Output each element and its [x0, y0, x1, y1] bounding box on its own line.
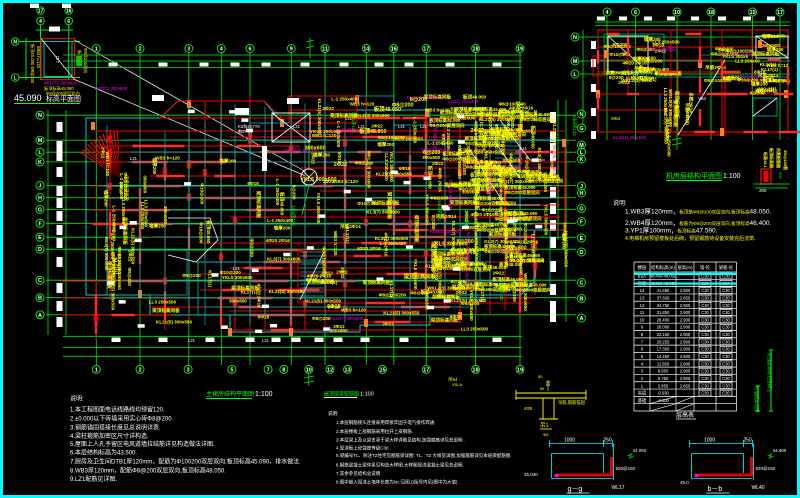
svg-text:墙厚200: 墙厚200 [219, 157, 236, 164]
svg-text:34.750: 34.750 [657, 303, 670, 308]
svg-text:N: N [573, 35, 577, 41]
svg-text:Φ8@200: Φ8@200 [249, 238, 254, 257]
svg-text:Φ8@100/200: Φ8@100/200 [123, 172, 128, 200]
svg-text:4: 4 [39, 19, 42, 25]
svg-text:E: E [580, 236, 584, 242]
svg-text:YKL5 300x600: YKL5 300x600 [392, 137, 423, 142]
svg-text:300x600: 300x600 [506, 119, 511, 137]
svg-text:19: 19 [517, 367, 523, 373]
svg-text:2Φ22: 2Φ22 [100, 147, 105, 159]
svg-text:板顶48.050: 板顶48.050 [374, 105, 401, 113]
svg-text:19: 19 [517, 47, 523, 53]
svg-text:梁顶标高同板: 梁顶标高同板 [413, 214, 420, 243]
svg-text:L21: L21 [345, 116, 353, 121]
svg-text:C30: C30 [701, 347, 709, 352]
svg-text:300x600: 300x600 [305, 146, 326, 152]
svg-text:300x600: 300x600 [229, 299, 247, 304]
svg-text:YKL5 300x600: YKL5 300x600 [543, 204, 548, 235]
svg-text:20.250: 20.250 [657, 339, 670, 344]
svg-text:机房层结构平面图: 机房层结构平面图 [666, 171, 722, 180]
svg-text:H: H [580, 191, 584, 197]
svg-text:XSLA: XSLA [452, 382, 463, 387]
svg-text:L-1 250x400: L-1 250x400 [331, 96, 357, 101]
svg-text:4.现浇板上砼强度等级C30 .: 4.现浇板上砼强度等级C30 . [336, 445, 391, 452]
svg-text:2.±0.000以下砖墙采用实心砖Φ8@200.: 2.±0.000以下砖墙采用实心砖Φ8@200. [70, 415, 174, 423]
svg-text:梁顶标高同板: 梁顶标高同板 [403, 273, 437, 281]
svg-text:WB4: WB4 [611, 116, 621, 121]
svg-text:1:100: 1:100 [723, 173, 741, 180]
svg-text:Φ8@200: Φ8@200 [112, 222, 117, 241]
svg-text:2.900: 2.900 [680, 303, 691, 308]
svg-text:2.900: 2.900 [680, 354, 691, 359]
svg-text:250: 250 [743, 438, 752, 444]
svg-text:11: 11 [322, 47, 328, 53]
svg-text:14: 14 [363, 47, 370, 53]
svg-text:L401 300x10: L401 300x10 [728, 51, 753, 56]
svg-text:17: 17 [38, 9, 44, 15]
svg-text:C30: C30 [722, 339, 730, 344]
svg-text:WB3 h=120: WB3 h=120 [341, 307, 366, 312]
svg-text:4Φ20 2Φ16: 4Φ20 2Φ16 [111, 251, 116, 276]
svg-text:C30: C30 [722, 369, 730, 374]
svg-text:KL17(1): KL17(1) [640, 77, 657, 82]
svg-text:说明:: 说明: [70, 395, 84, 403]
svg-text:L21: L21 [188, 338, 196, 343]
svg-text:6Φ18: 6Φ18 [450, 314, 462, 319]
svg-text:V84: V84 [698, 96, 707, 101]
svg-text:吊1: 吊1 [540, 422, 549, 429]
svg-text:墙厚200: 墙厚200 [149, 223, 166, 230]
svg-text:Φ10@200: Φ10@200 [200, 183, 205, 204]
svg-text:2Φ22: 2Φ22 [127, 250, 132, 262]
svg-text:L21: L21 [520, 146, 528, 151]
svg-text:2.900: 2.900 [680, 288, 691, 293]
svg-text:17: 17 [423, 367, 429, 373]
svg-text:7.其余参见结构总说明.: 7.其余参见结构总说明. [336, 470, 382, 477]
svg-text:WB3 h=120: WB3 h=120 [312, 133, 337, 138]
svg-text:KL17(1): KL17(1) [761, 67, 778, 72]
svg-text:920@150: 920@150 [616, 466, 636, 471]
svg-text:300x600: 300x600 [142, 175, 147, 193]
svg-text:K: K [580, 157, 584, 163]
svg-text:C30: C30 [701, 383, 709, 388]
svg-text:1000: 1000 [564, 438, 575, 444]
svg-text:L: L [14, 76, 17, 82]
svg-text:300x600: 300x600 [506, 245, 527, 251]
svg-text:13: 13 [640, 295, 645, 300]
svg-text:L-1 250x400: L-1 250x400 [428, 140, 454, 145]
svg-text:37.600: 37.600 [657, 295, 670, 300]
svg-text:9.LZ1配筋见详图.: 9.LZ1配筋见详图. [70, 475, 117, 483]
svg-text:WB3 h=120: WB3 h=120 [333, 231, 338, 256]
svg-text:梁顶标高同板: 梁顶标高同板 [362, 279, 391, 286]
svg-text:Φ8@100/200: Φ8@100/200 [379, 293, 407, 298]
svg-text:E: E [38, 235, 42, 241]
svg-text:B: B [38, 296, 42, 302]
svg-text:Φ8@200: Φ8@200 [410, 291, 429, 296]
svg-text:N: N [38, 113, 42, 119]
svg-text:KL40(1) 300x600: KL40(1) 300x600 [613, 135, 647, 140]
svg-text:N: N [13, 40, 17, 46]
svg-text:8@200: 8@200 [451, 279, 466, 284]
svg-text:标高48.1: 标高48.1 [763, 151, 769, 169]
svg-text:C30: C30 [701, 288, 709, 293]
svg-text:KL3(7) 300x600: KL3(7) 300x600 [457, 145, 462, 179]
svg-text:200: 200 [759, 188, 767, 193]
svg-text:A: A [38, 313, 42, 319]
svg-text:3米6厚120: 3米6厚120 [498, 280, 505, 301]
svg-text:Φ8@200双层双向: Φ8@200双层双向 [466, 164, 502, 171]
svg-text:YKL5 300x600: YKL5 300x600 [316, 192, 321, 223]
svg-text:C30: C30 [722, 317, 730, 322]
svg-text:KL3(7) 300x600: KL3(7) 300x600 [267, 256, 301, 261]
svg-text:墙厚200: 墙厚200 [767, 46, 784, 53]
svg-text:KL8(5) 300x600: KL8(5) 300x600 [430, 229, 461, 234]
svg-text:Φ8@200双层双向: Φ8@200双层双向 [498, 113, 534, 120]
svg-text:层高(m): 层高(m) [677, 264, 693, 271]
svg-text:C30: C30 [722, 391, 730, 396]
svg-text:墙厚200: 墙厚200 [273, 225, 290, 232]
svg-text:吊筋配筋图: 吊筋配筋图 [776, 148, 782, 168]
svg-text:KL17(1): KL17(1) [208, 270, 213, 287]
svg-text:WL17: WL17 [612, 485, 625, 491]
svg-text:2.900: 2.900 [680, 361, 691, 366]
svg-text:1.WB3厚120mm，板顶筋Φ8@200双层双向,板顶标高: 1.WB3厚120mm，板顶筋Φ8@200双层双向,板顶标高48.050. [625, 208, 771, 216]
svg-text:L21: L21 [293, 124, 301, 129]
svg-text:楼层: 楼层 [638, 264, 647, 271]
svg-text:23.150: 23.150 [657, 332, 670, 337]
svg-text:砼强度等级范围标注: 砼强度等级范围标注 [766, 353, 773, 393]
svg-text:8@200: 8@200 [613, 42, 628, 47]
svg-text:说明:: 说明: [328, 410, 338, 417]
svg-text:H: H [38, 196, 42, 202]
svg-text:45.0: 45.0 [680, 480, 689, 485]
svg-text:2.900: 2.900 [680, 317, 691, 322]
svg-text:LL3 250x500: LL3 250x500 [461, 327, 489, 332]
svg-text:3米6厚120: 3米6厚120 [571, 115, 578, 136]
svg-text:3米6厚120: 3米6厚120 [290, 205, 297, 226]
svg-text:Φ8@100/20: Φ8@100/20 [494, 124, 499, 149]
svg-text:2Φ22: 2Φ22 [321, 270, 333, 275]
svg-text:1.本层钢筋接头连接采用焊接牢固于电气接作焊通.: 1.本层钢筋接头连接采用焊接牢固于电气接作焊通. [336, 419, 436, 426]
svg-text:4Φ20 2Φ16: 4Φ20 2Φ16 [256, 283, 261, 308]
svg-text:1:100: 1:100 [255, 391, 273, 398]
svg-text:Φ8@200: Φ8@200 [435, 294, 454, 299]
svg-text:C30: C30 [722, 303, 730, 308]
svg-text:2.900: 2.900 [680, 325, 691, 330]
svg-text:KL3(7) 300x600: KL3(7) 300x600 [375, 236, 409, 241]
svg-text:50: 50 [540, 386, 545, 391]
svg-text:板顶标高图: 板顶标高图 [769, 148, 775, 168]
svg-text:KL21(5) 300x550: KL21(5) 300x550 [317, 99, 322, 135]
svg-text:Φ8@200双层双向: Φ8@200双层双向 [525, 175, 561, 182]
svg-text:3.YP1厚100mm，板顶标高47.590.: 3.YP1厚100mm，板顶标高47.590. [625, 227, 718, 235]
svg-text:KL7(5) 300x600: KL7(5) 300x600 [464, 255, 469, 286]
svg-text:300x600: 300x600 [563, 222, 568, 240]
svg-text:L21: L21 [420, 124, 428, 129]
svg-text:8.650: 8.650 [658, 369, 669, 374]
svg-text:5.梁编号TL、除注TZ住宅见图纸梁详图: TL、TZ 大样: 5.梁编号TL、除注TZ住宅见图纸梁详图: TL、TZ 大样见详图,加强箍筋详见… [336, 452, 512, 459]
svg-text:梁顶标高同板: 梁顶标高同板 [672, 99, 679, 128]
svg-text:梁板-砼: 梁板-砼 [719, 264, 734, 271]
svg-text:KL21(5) 300x550: KL21(5) 300x550 [383, 310, 419, 315]
svg-text:C30: C30 [701, 303, 709, 308]
svg-text:2Φ22: 2Φ22 [493, 271, 505, 276]
svg-text:KL21(5) 300x550: KL21(5) 300x550 [269, 289, 305, 294]
svg-text:4Φ20 2Φ16: 4Φ20 2Φ16 [266, 238, 291, 243]
svg-text:KL7(5) 300x600: KL7(5) 300x600 [488, 166, 493, 197]
svg-text:8.图中嵌入现浇土墙体长度为loc:见图,()括号内见(图中: 8.图中嵌入现浇土墙体长度为loc:见图,()括号内见(图中为大值) . [336, 479, 460, 486]
svg-text:说明:: 说明: [613, 199, 627, 207]
svg-text:基础: 基础 [638, 397, 647, 404]
svg-text:3米6厚120: 3米6厚120 [436, 200, 443, 221]
svg-text:2Φ22: 2Φ22 [754, 89, 766, 94]
svg-text:KL21(5) 300x550: KL21(5) 300x550 [305, 298, 341, 303]
svg-text:14.450: 14.450 [657, 354, 670, 359]
svg-text:LL3 250x50: LL3 250x50 [735, 58, 760, 63]
svg-text:LL3 250x500: LL3 250x500 [663, 88, 668, 116]
svg-text:J: J [38, 183, 41, 189]
svg-text:14: 14 [640, 288, 645, 293]
svg-text:L21: L21 [358, 124, 366, 129]
svg-text:WKL2(3) 300x600: WKL2(3) 300x600 [367, 151, 372, 189]
svg-text:6: 6 [634, 10, 637, 16]
svg-text:1.本工程图面电话线路线均预留120.: 1.本工程图面电话线路线均预留120. [70, 406, 165, 414]
svg-text:墙厚200: 墙厚200 [102, 190, 109, 207]
svg-text:G: G [579, 126, 583, 132]
svg-text:WB3 h=120: WB3 h=120 [105, 151, 110, 176]
svg-text:15: 15 [379, 367, 385, 373]
svg-text:10: 10 [640, 317, 645, 322]
svg-text:18: 18 [473, 47, 479, 53]
svg-text:300x600: 300x600 [330, 328, 348, 333]
svg-text:2Φ22: 2Φ22 [371, 124, 383, 129]
svg-text:16: 16 [66, 9, 72, 15]
svg-text:300: 300 [778, 172, 783, 179]
svg-text:LL3 250x500: LL3 250x500 [149, 299, 177, 304]
svg-text:L21: L21 [130, 156, 138, 161]
svg-text:L21: L21 [233, 266, 241, 271]
svg-text:KL3(7) 300x600: KL3(7) 300x600 [366, 209, 400, 214]
svg-text:KL21(5) 300x550: KL21(5) 300x550 [110, 274, 115, 310]
svg-text:6Φ18: 6Φ18 [247, 181, 259, 186]
svg-text:4Φ20 2Φ16: 4Φ20 2Φ16 [357, 246, 382, 251]
svg-text:LL3 250x500: LL3 250x500 [384, 153, 389, 181]
svg-text:KL7(5) 300x600: KL7(5) 300x600 [432, 119, 437, 150]
svg-text:9: 9 [290, 47, 293, 53]
svg-text:12: 12 [327, 367, 333, 373]
svg-text:7.厨房及卫生间DTB1厚120mm，配筋为Φ100200双: 7.厨房及卫生间DTB1厚120mm，配筋为Φ100200双层双向,板顶标高45… [70, 458, 301, 466]
svg-text:C30: C30 [701, 391, 709, 396]
svg-text:Φ8@200双层双向: Φ8@200双层双向 [515, 287, 551, 294]
svg-text:C30: C30 [722, 376, 730, 381]
svg-text:2.900: 2.900 [680, 332, 691, 337]
svg-text:C30: C30 [701, 317, 709, 322]
svg-text:结构标高(m): 结构标高(m) [651, 264, 675, 271]
svg-text:C30: C30 [722, 325, 730, 330]
svg-text:50: 50 [538, 374, 543, 379]
svg-text:2.900: 2.900 [680, 369, 691, 374]
svg-text:250: 250 [603, 438, 612, 444]
svg-text:KL12(7) 300x600: KL12(7) 300x600 [330, 316, 364, 321]
svg-text:B: B [580, 297, 584, 303]
svg-text:C30: C30 [722, 310, 730, 315]
svg-text:C30: C30 [722, 354, 730, 359]
svg-text:屋顶层梁配筋图: 屋顶层梁配筋图 [324, 391, 359, 398]
svg-text:WB3 h=120: WB3 h=120 [36, 46, 41, 69]
svg-text:墙厚200: 墙厚200 [632, 56, 649, 63]
svg-text:44.050: 44.050 [633, 448, 647, 453]
svg-text:2Φ22: 2Φ22 [382, 322, 394, 327]
svg-text:2.900: 2.900 [680, 347, 691, 352]
svg-text:6.本层结构标高为43.500.: 6.本层结构标高为43.500. [70, 449, 137, 457]
svg-text:3.钢筋锚固搭接长度见总说明详表.: 3.钢筋锚固搭接长度见总说明详表. [70, 424, 161, 432]
svg-text:L21: L21 [262, 338, 270, 343]
svg-text:WB3 h=120: WB3 h=120 [350, 102, 375, 107]
svg-text:A: A [580, 316, 584, 322]
svg-text:G: G [579, 207, 583, 213]
svg-text:7: 7 [267, 367, 270, 373]
svg-text:墙厚200: 墙厚200 [644, 36, 661, 43]
svg-text:C30: C30 [701, 369, 709, 374]
svg-text:C30: C30 [722, 383, 730, 388]
svg-text:墙厚200: 墙厚200 [377, 141, 394, 148]
svg-text:Φ8@200双层双向: Φ8@200双层双向 [504, 189, 540, 196]
svg-text:吊筋,钢筋锚固: 吊筋,钢筋锚固 [558, 399, 585, 406]
svg-text:17: 17 [777, 10, 783, 16]
svg-text:WB3 h=120: WB3 h=120 [453, 287, 478, 292]
svg-text:WB3 h=120: WB3 h=120 [333, 179, 358, 184]
svg-text:4Φ8: 4Φ8 [524, 406, 533, 411]
svg-text:6: 6 [67, 19, 70, 25]
svg-text:WB3 h=120: WB3 h=120 [155, 156, 180, 161]
svg-text:17: 17 [423, 47, 429, 53]
svg-text:Φ10@200双向: Φ10@200双向 [648, 46, 676, 53]
svg-text:41.650: 41.650 [657, 288, 670, 293]
svg-text:YKL5 300x600: YKL5 300x600 [300, 177, 336, 183]
svg-text:3: 3 [187, 47, 190, 53]
svg-text:2: 2 [138, 47, 141, 53]
svg-text:2.本层楼板上部钢筋采用拉开上皮钢筋.: 2.本层楼板上部钢筋采用拉开上皮钢筋. [336, 428, 413, 435]
svg-text:L-1 250x400: L-1 250x400 [336, 121, 341, 147]
svg-text:1: 1 [95, 367, 98, 373]
svg-text:50: 50 [546, 382, 551, 387]
svg-text:主裙房结构平面图: 主裙房结构平面图 [206, 390, 254, 398]
svg-text:2.850: 2.850 [680, 383, 691, 388]
svg-text:板顶45.090 Φ8@200: 板顶45.090 Φ8@200 [29, 44, 36, 84]
svg-text:W.I1 300x60: W.I1 300x60 [740, 73, 764, 78]
svg-text:WB3T1 300x600: WB3T1 300x600 [44, 81, 78, 86]
svg-text:L-1 250x400: L-1 250x400 [267, 218, 293, 223]
svg-text:6Φ18: 6Φ18 [258, 315, 270, 320]
svg-text:-0.030: -0.030 [657, 391, 669, 396]
svg-text:C30: C30 [701, 339, 709, 344]
svg-text:LL3 250x500: LL3 250x500 [144, 200, 149, 228]
svg-text:18: 18 [473, 367, 479, 373]
svg-text:WB3T1 300x600: WB3T1 300x600 [95, 86, 128, 91]
svg-text:板顶48.050: 板顶48.050 [762, 77, 786, 84]
svg-text:Φ8: Φ8 [543, 432, 549, 437]
svg-text:KL3(7) 300x600: KL3(7) 300x600 [104, 237, 109, 271]
svg-text:15: 15 [749, 10, 755, 16]
svg-text:WL40: WL40 [752, 485, 765, 491]
svg-text:45.090: 45.090 [14, 93, 42, 103]
svg-text:YKL5 300x600: YKL5 300x600 [469, 290, 474, 321]
svg-text:Φ8@200筋: Φ8@200筋 [783, 150, 789, 170]
svg-text:Φ10@200: Φ10@200 [357, 201, 378, 206]
svg-text:11.550: 11.550 [657, 361, 670, 366]
svg-text:2Φ22: 2Φ22 [432, 161, 444, 166]
svg-text:4Φ20 2Φ16: 4Φ20 2Φ16 [438, 168, 443, 193]
svg-text:Φ8@100/200: Φ8@100/200 [117, 246, 122, 274]
svg-text:31.850: 31.850 [657, 310, 670, 315]
svg-text:11: 11 [640, 310, 645, 315]
svg-text:920@150: 920@150 [756, 466, 776, 471]
svg-text:3.本层梁上及以梁支承于梁大样详图见结构,加强箍筋详见总说明: 3.本层梁上及以梁支承于梁大样详图见结构,加强箍筋详见总说明 . [336, 437, 465, 444]
svg-text:梁顶标高同板: 梁顶标高同板 [122, 216, 129, 245]
svg-text:5: 5 [230, 367, 233, 373]
svg-text:C30: C30 [722, 288, 730, 293]
svg-text:C30: C30 [722, 295, 730, 300]
svg-text:2Φ22: 2Φ22 [336, 269, 348, 274]
svg-text:28.400: 28.400 [657, 317, 670, 322]
svg-text:2: 2 [138, 367, 141, 373]
svg-text:Φ8@200双层双向: Φ8@200双层双向 [477, 227, 513, 234]
svg-text:8: 8 [282, 367, 285, 373]
svg-text:KL17(1): KL17(1) [685, 108, 690, 125]
svg-text:层高表: 层高表 [676, 411, 694, 419]
svg-text:KL7(5) 300x600: KL7(5) 300x600 [448, 180, 453, 211]
svg-text:K: K [38, 160, 42, 166]
svg-text:KL7(5) 300x600: KL7(5) 300x600 [552, 146, 557, 177]
svg-text:1:100: 1:100 [360, 392, 374, 398]
svg-text:2.850: 2.850 [658, 383, 669, 388]
svg-text:8@200: 8@200 [423, 150, 440, 156]
svg-text:YKL5 300x600: YKL5 300x600 [425, 194, 430, 225]
svg-text:L21: L21 [398, 124, 406, 129]
svg-text:C30: C30 [701, 361, 709, 366]
svg-text:b－b: b－b [708, 486, 723, 493]
svg-text:2.900: 2.900 [680, 310, 691, 315]
svg-text:6Φ18: 6Φ18 [441, 134, 446, 146]
svg-text:6Φ18: 6Φ18 [327, 304, 340, 310]
svg-text:6Φ18: 6Φ18 [399, 166, 411, 171]
svg-text:吊筋2Φ14: 吊筋2Φ14 [721, 75, 742, 82]
svg-text:17.350: 17.350 [657, 347, 670, 352]
svg-text:2Φ22: 2Φ22 [334, 162, 347, 168]
svg-text:4.梁柱箍筋加密区尺寸详构造.: 4.梁柱箍筋加密区尺寸详构造. [70, 432, 149, 440]
svg-text:D: D [38, 247, 42, 253]
svg-text:C30: C30 [701, 295, 709, 300]
svg-text:Φ8@200: Φ8@200 [182, 273, 201, 278]
svg-text:5.屋面上人孔予留区电风道墙拉结筋详见构造做法详图.: 5.屋面上人孔予留区电风道墙拉结筋详见构造做法详图. [70, 440, 215, 448]
svg-text:C30: C30 [701, 376, 709, 381]
svg-text:L41(1) 250x400: L41(1) 250x400 [448, 99, 479, 104]
svg-text:2.900: 2.900 [680, 339, 691, 344]
svg-text:g－g: g－g [568, 486, 583, 493]
svg-text:梁顶标高同板: 梁顶标高同板 [255, 190, 262, 219]
svg-text:8@200: 8@200 [410, 97, 427, 103]
svg-text:墙厚200: 墙厚200 [637, 66, 654, 73]
svg-text:44.400: 44.400 [773, 448, 787, 453]
svg-text:10: 10 [674, 10, 680, 16]
svg-text:5.750: 5.750 [658, 376, 669, 381]
svg-text:2Φ22: 2Φ22 [618, 80, 630, 85]
svg-text:Φ8@200: Φ8@200 [127, 267, 132, 286]
svg-text:Φ10@200: Φ10@200 [665, 118, 670, 139]
svg-text:Φ8@200双层双向: Φ8@200双层双向 [509, 257, 545, 264]
svg-text:2.900: 2.900 [680, 376, 691, 381]
